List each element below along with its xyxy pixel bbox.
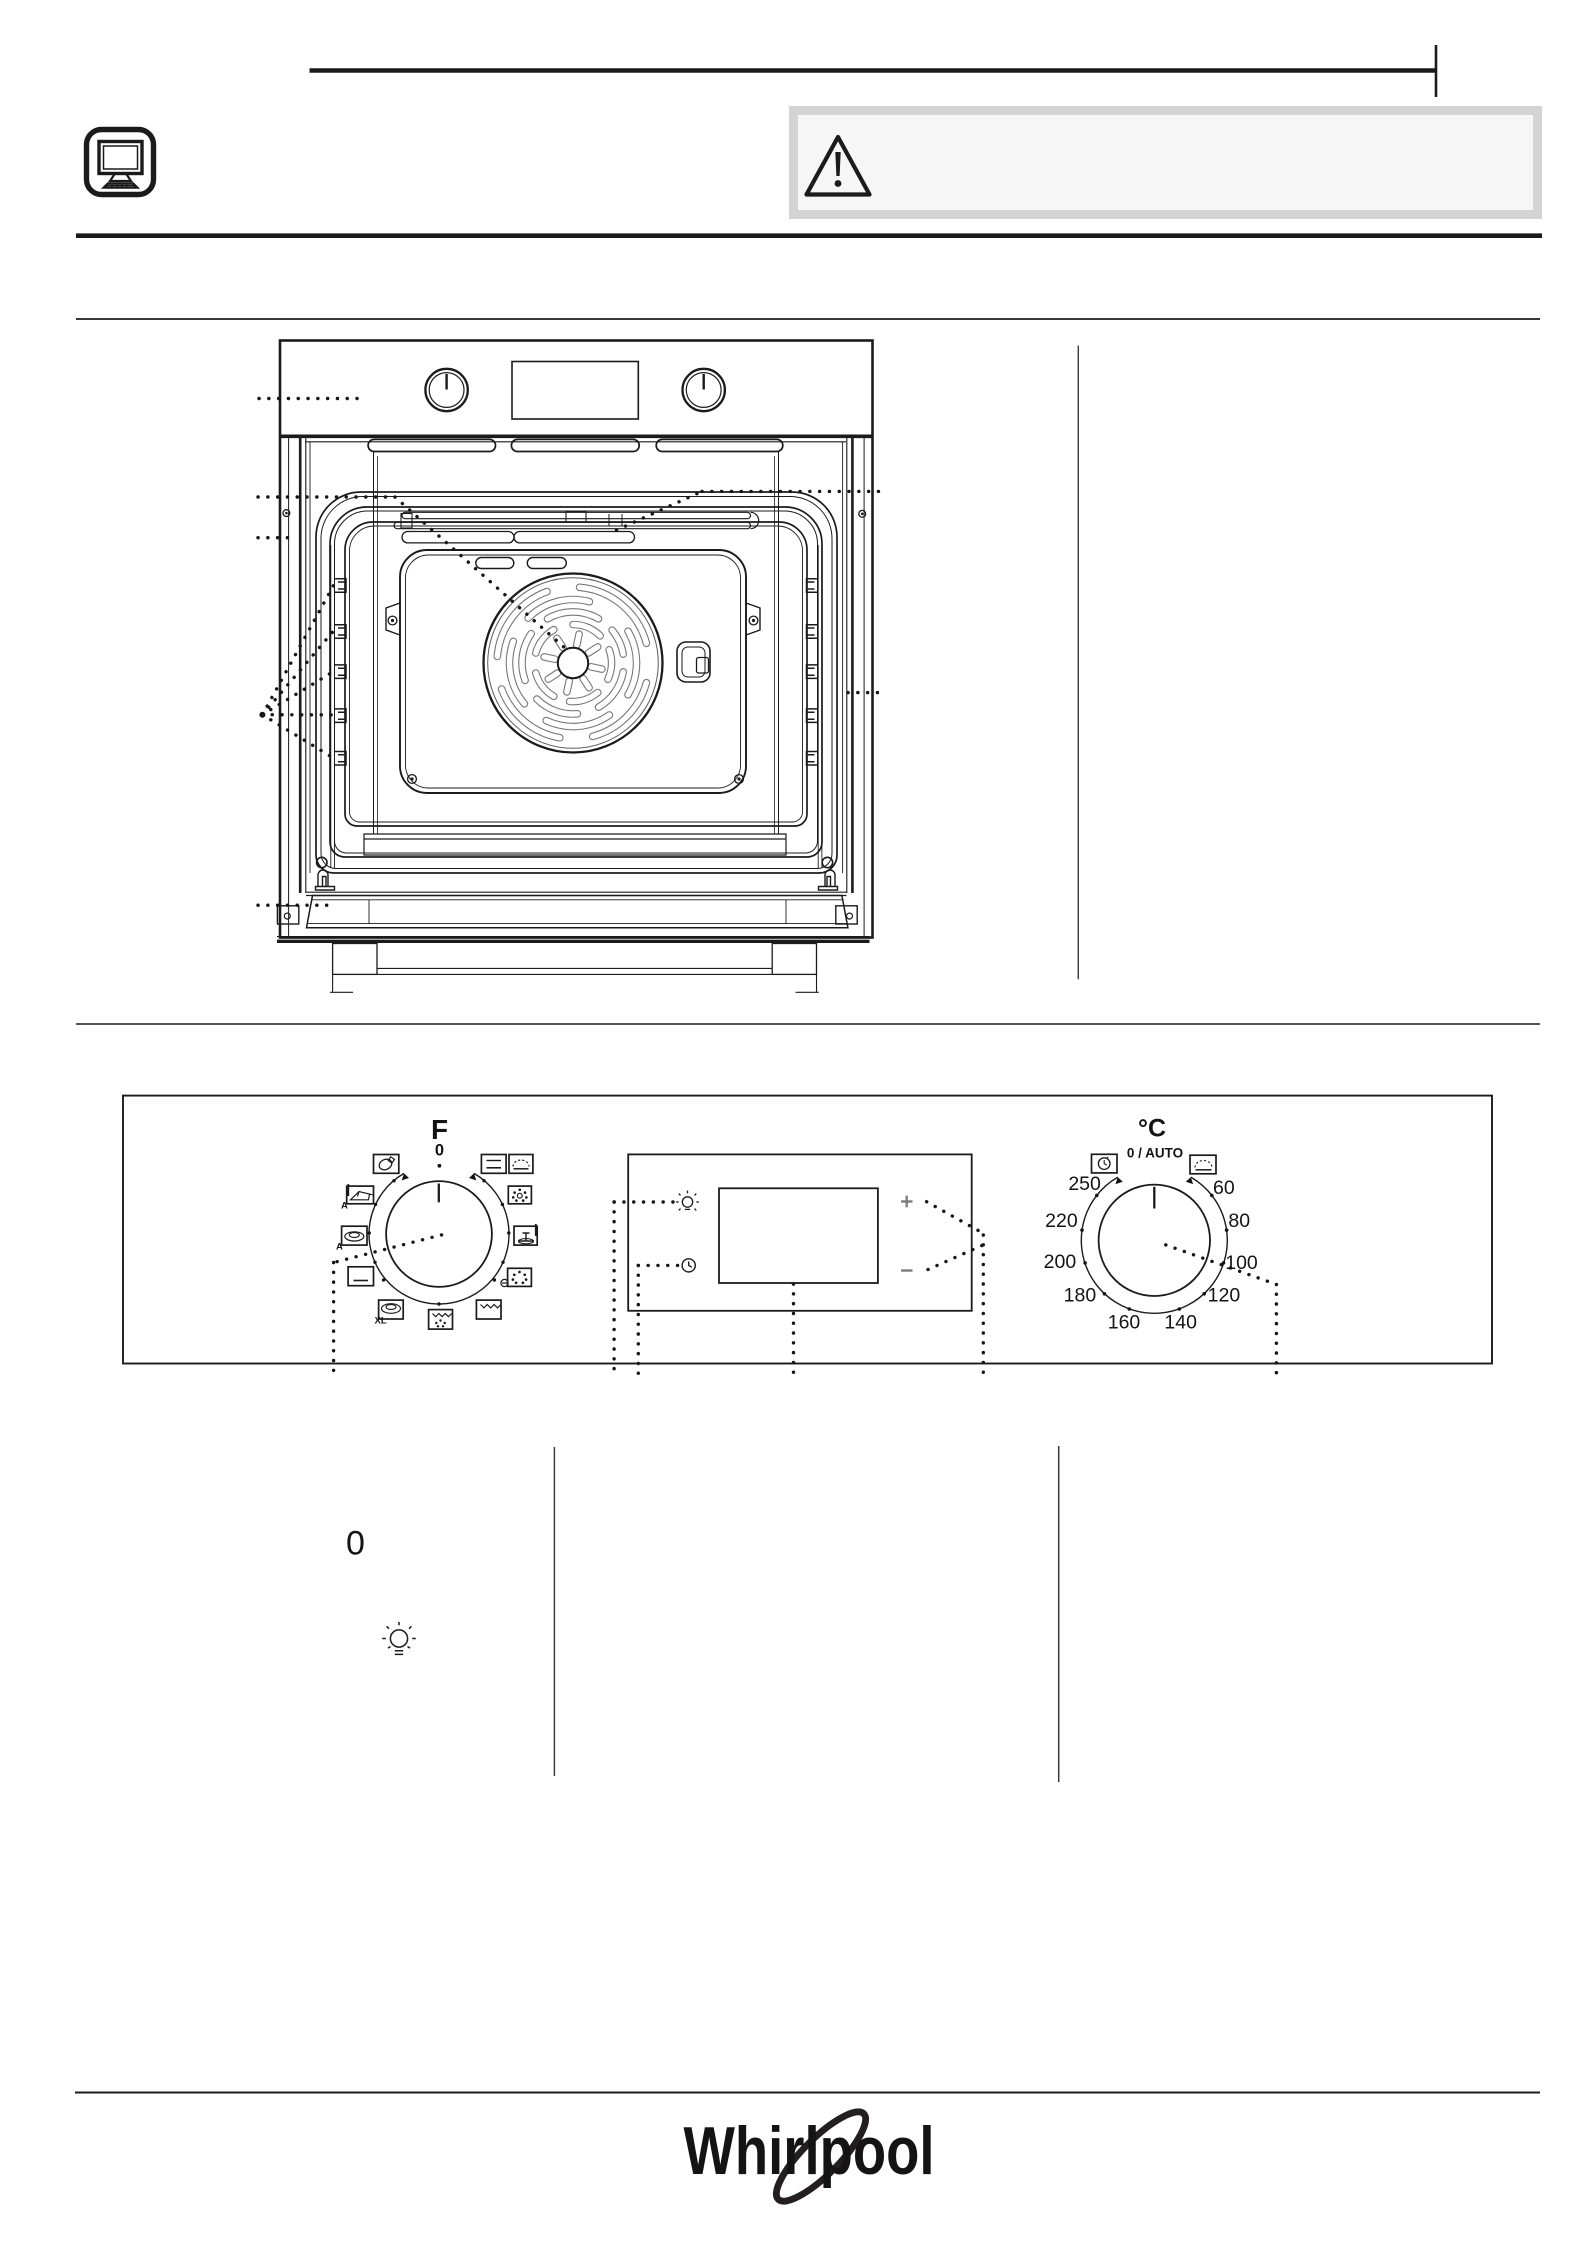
svg-text:0: 0: [346, 1525, 365, 1563]
svg-text:100: 100: [1225, 1252, 1258, 1274]
svg-text:0 / AUTO: 0 / AUTO: [1127, 1146, 1183, 1161]
svg-text:140: 140: [1164, 1312, 1197, 1334]
svg-text:A: A: [336, 1242, 343, 1253]
svg-text:°C: °C: [1138, 1115, 1166, 1143]
svg-text:XL: XL: [375, 1316, 387, 1327]
svg-text:120: 120: [1208, 1285, 1241, 1307]
svg-text:A: A: [341, 1201, 348, 1212]
svg-text:60: 60: [1213, 1177, 1235, 1199]
svg-text:180: 180: [1064, 1285, 1097, 1307]
svg-text:220: 220: [1045, 1210, 1078, 1232]
svg-text:F: F: [431, 1114, 448, 1145]
svg-text:250: 250: [1068, 1173, 1101, 1195]
svg-text:0: 0: [435, 1142, 444, 1160]
svg-text:160: 160: [1108, 1312, 1141, 1334]
svg-text:Whirlpool: Whirlpool: [684, 2114, 935, 2189]
svg-text:200: 200: [1044, 1251, 1077, 1273]
svg-text:80: 80: [1228, 1210, 1250, 1232]
